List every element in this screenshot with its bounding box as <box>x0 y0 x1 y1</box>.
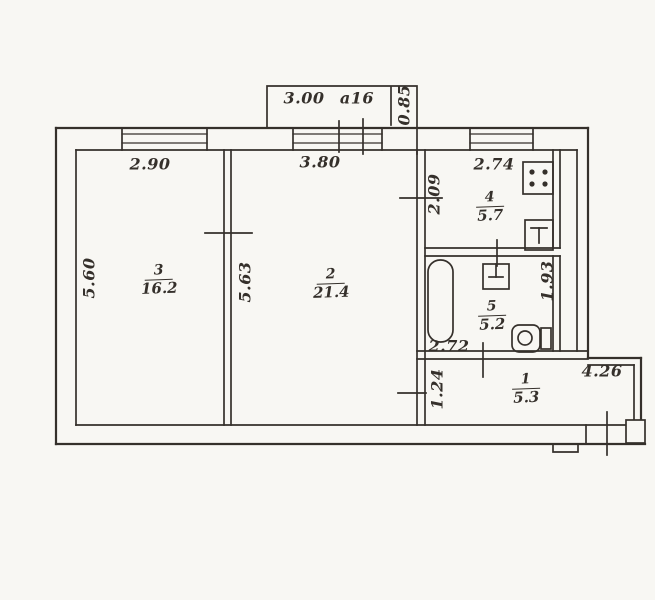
room-label-1: 1 5.3 <box>512 372 541 406</box>
room-area: 5.7 <box>477 207 504 225</box>
dim-kitchen-width: 2.74 <box>474 155 515 174</box>
room-number: 1 <box>512 372 540 390</box>
room-number: 4 <box>476 190 504 208</box>
balcony-width-label: 3.00 <box>284 89 325 108</box>
balcony-code-label: a16 <box>340 89 374 108</box>
balcony-depth-label: 0.85 <box>395 85 414 126</box>
dim-room3-depth: 5.60 <box>80 258 99 299</box>
window-room2-icon <box>293 134 382 143</box>
dim-room2-width: 3.80 <box>300 153 341 172</box>
room-number: 3 <box>145 263 173 281</box>
room-label-4: 4 5.7 <box>476 190 505 224</box>
window-kitchen-icon <box>470 134 533 143</box>
room-label-5: 5 5.2 <box>478 299 507 333</box>
dim-duct-depth: 1.93 <box>538 261 557 302</box>
dim-room3-width: 2.90 <box>130 155 171 174</box>
dim-hallway-depth: 1.24 <box>428 369 447 410</box>
room-area: 16.2 <box>141 279 178 297</box>
wash-basin-icon <box>483 264 509 289</box>
bathtub-icon <box>428 260 453 342</box>
room-number: 2 <box>317 267 345 285</box>
window-room3-icon <box>122 134 207 143</box>
room-area: 21.4 <box>313 283 350 301</box>
stove-icon <box>523 162 553 194</box>
floor-plan: 3.00 a16 0.85 2.90 3.80 2.74 2.72 4.26 5… <box>0 0 655 600</box>
room-area: 5.2 <box>479 316 506 334</box>
toilet-icon <box>512 325 551 352</box>
wall-piers <box>122 128 533 150</box>
entrance-door-mark <box>586 412 607 455</box>
room-area: 5.3 <box>513 389 540 407</box>
room-label-2: 2 21.4 <box>312 267 350 302</box>
room-number: 5 <box>478 299 506 317</box>
dim-hallway-width: 4.26 <box>582 362 623 381</box>
dim-bathroom-width: 2.72 <box>429 337 470 356</box>
room-label-3: 3 16.2 <box>140 263 178 298</box>
dim-kitchen-depth: 2.09 <box>425 174 444 215</box>
kitchen-sink-icon <box>525 220 553 250</box>
wall-pier-block <box>626 420 645 443</box>
dim-room2-depth: 5.63 <box>236 262 255 303</box>
threshold-notch <box>553 444 578 452</box>
